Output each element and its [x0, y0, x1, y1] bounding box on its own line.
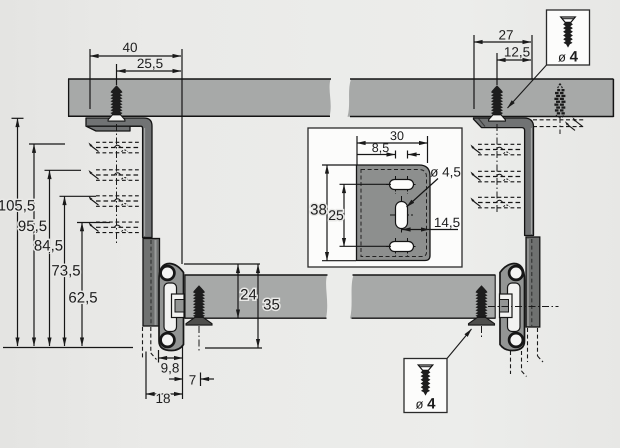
svg-text:8,5: 8,5	[372, 141, 389, 155]
svg-text:30: 30	[390, 129, 404, 143]
svg-text:12,5: 12,5	[504, 45, 530, 60]
svg-text:62,5: 62,5	[68, 290, 97, 307]
svg-text:27: 27	[498, 28, 513, 43]
svg-text:ø 4: ø 4	[416, 396, 437, 413]
svg-text:40: 40	[122, 40, 137, 55]
svg-text:38: 38	[310, 202, 327, 219]
svg-text:73,5: 73,5	[51, 263, 80, 280]
svg-text:35: 35	[263, 297, 280, 314]
svg-text:14,5: 14,5	[434, 215, 460, 230]
svg-text:24: 24	[240, 287, 257, 304]
svg-text:105,5: 105,5	[0, 198, 35, 215]
svg-text:9,8: 9,8	[161, 361, 180, 376]
svg-text:95,5: 95,5	[18, 218, 47, 235]
svg-text:7: 7	[189, 373, 197, 388]
svg-text:25: 25	[328, 207, 344, 223]
svg-text:18: 18	[155, 391, 170, 406]
svg-text:25,5: 25,5	[137, 56, 163, 71]
svg-text:84,5: 84,5	[34, 238, 63, 255]
svg-text:ø 4: ø 4	[558, 49, 579, 66]
svg-text:ø 4,5: ø 4,5	[430, 165, 461, 180]
